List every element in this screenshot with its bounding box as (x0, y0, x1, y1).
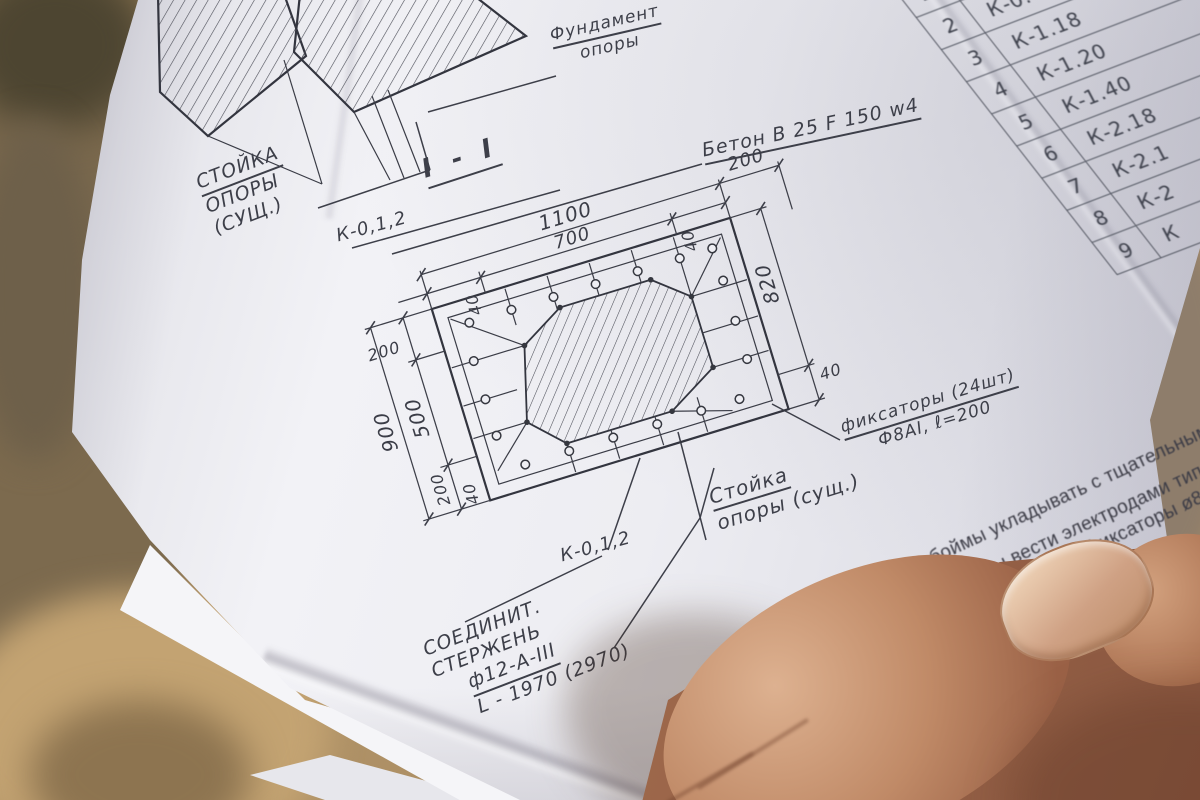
photo-scene: 1100 200 700 200 900 500 200 820 40 40 4… (0, 0, 1200, 800)
hand (0, 0, 1200, 800)
